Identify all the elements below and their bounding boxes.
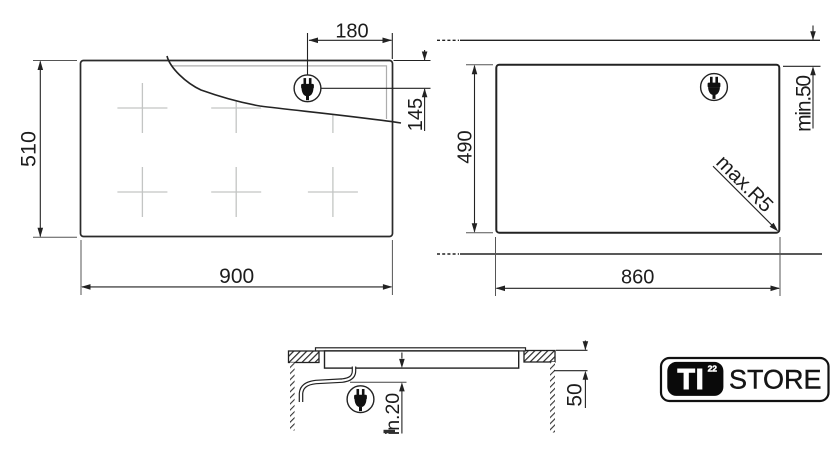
svg-text:TI: TI	[678, 364, 705, 396]
svg-text:in.20: in.20	[382, 393, 404, 435]
svg-text:490: 490	[455, 130, 477, 163]
svg-text:145: 145	[405, 98, 427, 131]
svg-text:180: 180	[335, 21, 368, 43]
svg-text:STORE: STORE	[729, 365, 822, 395]
svg-text:860: 860	[621, 267, 654, 289]
svg-text:22: 22	[708, 364, 718, 374]
svg-text:900: 900	[219, 265, 254, 288]
svg-text:50: 50	[564, 383, 587, 406]
svg-text:510: 510	[17, 131, 41, 167]
svg-text:min.50: min.50	[793, 76, 816, 132]
